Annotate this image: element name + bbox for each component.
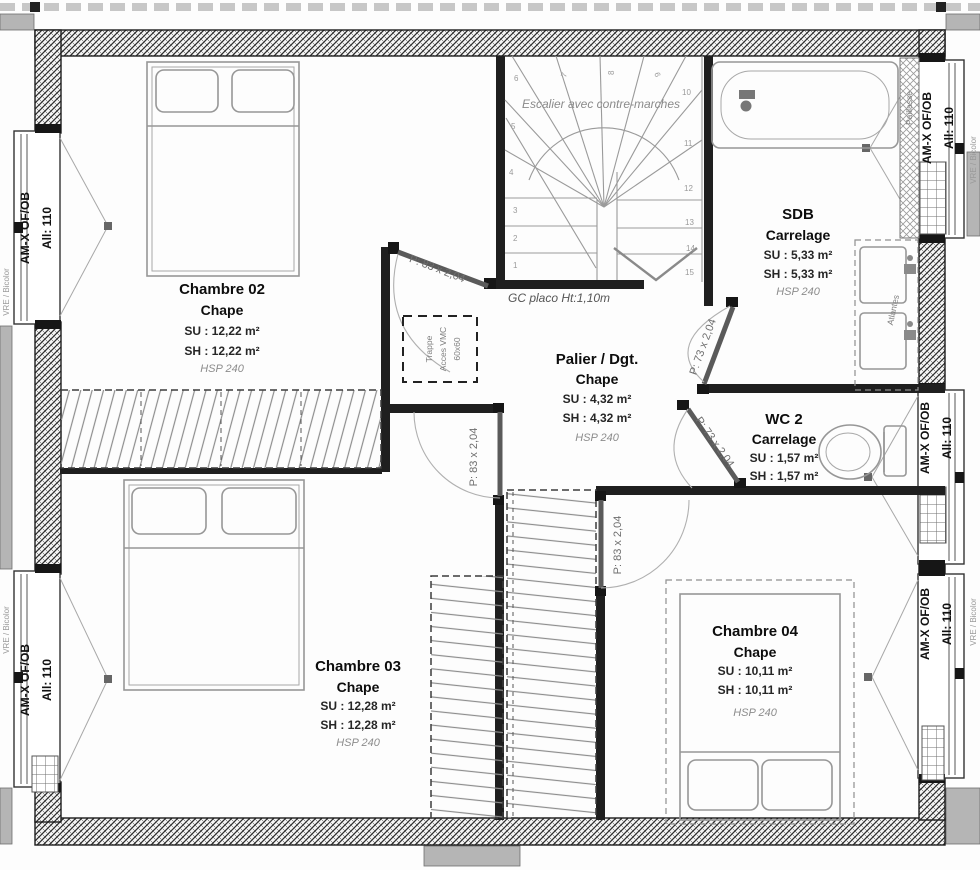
stair-step-number: 9 [653, 70, 663, 78]
room-name: WC 2 [765, 411, 803, 428]
toilet-icon [819, 425, 906, 479]
stair-step-number: 1 [513, 261, 518, 270]
window-label-line1: AM-X OF/OB [918, 402, 932, 474]
vre-bicolor-label: VRE / Bicolor [969, 598, 978, 646]
window-label-line2: All: 110 [940, 603, 954, 645]
paillasse-counter: Paillasse [900, 58, 919, 238]
window-label-line1: AM-X OF/OB [18, 192, 32, 264]
room-hsp: HSP 240 [200, 363, 245, 375]
room-su: SU : 1,57 m² [750, 451, 819, 465]
stair-step-number: 15 [685, 268, 694, 277]
trappe-access-box: Trappe Acces VMC 60x60 [403, 316, 477, 382]
window-label-line2: All: 110 [942, 107, 956, 149]
window-right-wc: AM-X OF/OB All: 110 [864, 383, 964, 569]
room-label-chambre-03: Chambre 03 Chape SU : 12,28 m² SH : 12,2… [315, 658, 401, 749]
window-label-line1: AM-X OF/OB [920, 92, 934, 164]
vre-bicolor-label: VRE / Bicolor [2, 268, 11, 316]
stair-step-number: 8 [607, 70, 616, 75]
bed-chambre03 [124, 480, 304, 690]
trappe-line3: 60x60 [452, 337, 462, 360]
room-su: SU : 4,32 m² [563, 392, 632, 406]
room-su: SU : 12,22 m² [184, 324, 259, 338]
room-hsp: HSP 240 [776, 286, 821, 298]
roof-edge-dashes [0, 2, 980, 30]
trappe-line2: Acces VMC [438, 327, 448, 371]
door-chambre03: P: 83 x 2,04 [414, 403, 504, 505]
window-label-line2: All: 110 [40, 207, 54, 249]
vre-bicolor-label: VRE / Bicolor [2, 606, 11, 654]
room-label-chambre-04: Chambre 04 Chape SU : 10,11 m² SH : 10,1… [712, 623, 799, 719]
stair-step-number: 10 [682, 88, 691, 97]
stair-step-number: 2 [513, 234, 518, 243]
room-hsp: HSP 240 [733, 707, 778, 719]
window-right-chambre04: AM-X OF/OB All: 110 [864, 567, 964, 783]
door-label: P: 83 x 2,04 [468, 428, 480, 487]
bed-chambre02 [147, 62, 299, 276]
room-name: SDB [782, 206, 814, 223]
room-finish: Chape [576, 371, 619, 387]
room-su: SU : 12,28 m² [320, 699, 395, 713]
room-su: SU : 10,11 m² [718, 664, 793, 678]
door-label: P: 83 x 2,04 [408, 253, 467, 285]
room-name: Chambre 02 [179, 281, 265, 298]
stair-step-number: 13 [685, 218, 694, 227]
room-name: Chambre 03 [315, 658, 401, 675]
stair-step-number: 3 [513, 206, 518, 215]
room-sh: SH : 10,11 m² [718, 683, 793, 697]
window-label-line2: All: 110 [940, 417, 954, 459]
room-label-palier: Palier / Dgt. Chape SU : 4,32 m² SH : 4,… [556, 351, 639, 444]
double-washbasin-icon: Atlantes [855, 240, 918, 390]
stair-step-number: 4 [509, 168, 514, 177]
door-label: P: 73 x 2,04 [693, 415, 737, 470]
room-name: Chambre 04 [712, 623, 799, 640]
bed-chambre04 [666, 580, 854, 824]
room-sh: SH : 12,28 m² [320, 718, 395, 732]
room-su: SU : 5,33 m² [764, 248, 833, 262]
door-chambre04: P: 83 x 2,04 [595, 491, 689, 596]
window-left-chambre02: AM-X OF/OB All: 110 [14, 124, 112, 329]
stair-step-number: 7 [559, 71, 569, 79]
room-label-sdb: SDB Carrelage SU : 5,33 m² SH : 5,33 m² … [764, 206, 833, 298]
room-name: Palier / Dgt. [556, 351, 639, 368]
bathtub-icon [712, 62, 898, 148]
window-label-line2: All: 110 [40, 659, 54, 701]
room-finish: Chape [201, 302, 244, 318]
stair-step-number: 6 [514, 74, 519, 83]
window-left-chambre03: AM-X OF/OB All: 110 [14, 564, 112, 792]
window-label-line1: AM-X OF/OB [18, 644, 32, 716]
room-hsp: HSP 240 [575, 432, 620, 444]
closets [61, 390, 596, 818]
trappe-line1: Trappe [424, 335, 434, 362]
room-hsp: HSP 240 [336, 737, 381, 749]
room-sh: SH : 1,57 m² [750, 469, 819, 483]
room-sh: SH : 5,33 m² [764, 267, 833, 281]
door-label: P: 83 x 2,04 [612, 516, 624, 575]
room-sh: SH : 4,32 m² [563, 411, 632, 425]
paillasse-label: Paillasse [904, 91, 914, 125]
stair-step-number: 11 [684, 139, 693, 148]
door-sdb: P: 73 x 2,04 [688, 297, 738, 394]
door-wc: P: 73 x 2,04 [674, 400, 746, 488]
staircase: Escalier avec contre-marches GC placo Ht… [505, 56, 702, 305]
room-sh: SH : 12,22 m² [184, 344, 259, 358]
floor-plan-page: AM-X OF/OB All: 110 AM-X OF/OB All: 110 [0, 0, 980, 870]
stair-step-number: 12 [684, 184, 693, 193]
room-label-wc2: WC 2 Carrelage SU : 1,57 m² SH : 1,57 m² [750, 411, 819, 483]
atlantes-label: Atlantes [885, 294, 901, 326]
floor-plan-svg: AM-X OF/OB All: 110 AM-X OF/OB All: 110 [0, 0, 980, 870]
stair-step-number: 14 [686, 244, 695, 253]
room-finish: Chape [337, 679, 380, 695]
room-finish: Chape [734, 644, 777, 660]
room-label-chambre-02: Chambre 02 Chape SU : 12,22 m² SH : 12,2… [179, 281, 265, 375]
window-label-line1: AM-X OF/OB [918, 588, 932, 660]
stair-step-number: 5 [511, 122, 516, 131]
door-label: P: 73 x 2,04 [688, 317, 719, 376]
vre-bicolor-label: VRE / Bicolor [969, 136, 978, 184]
room-finish: Carrelage [766, 227, 831, 243]
stair-caption: Escalier avec contre-marches [522, 97, 680, 111]
stair-note: GC placo Ht:1,10m [508, 291, 610, 305]
room-finish: Carrelage [752, 431, 817, 447]
